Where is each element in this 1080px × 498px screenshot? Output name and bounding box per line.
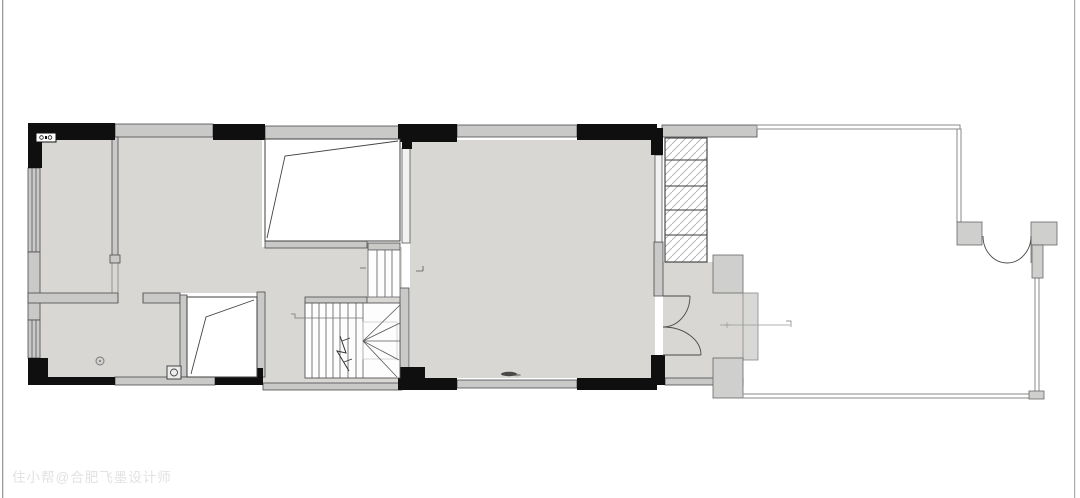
floorplan-canvas: 住小帮@合肥飞墨设计师 bbox=[0, 0, 1080, 498]
courtyard bbox=[743, 125, 1057, 399]
stair-right-wall bbox=[400, 288, 409, 378]
wall-top-mid bbox=[213, 124, 265, 140]
wall-bottom-living-right bbox=[577, 378, 657, 390]
bathroom-right-wall bbox=[180, 295, 187, 377]
cabinet-body bbox=[665, 138, 707, 262]
gate-arc-right bbox=[1007, 236, 1031, 263]
window-top-living bbox=[457, 125, 577, 137]
living-room-floor bbox=[410, 140, 655, 378]
void-c-right-wall bbox=[257, 292, 265, 377]
window-bottom-left bbox=[115, 377, 215, 385]
wall-bottom-living-left bbox=[400, 378, 457, 390]
void-upper bbox=[265, 139, 400, 241]
cabinet bbox=[665, 138, 707, 262]
watermark-text: 住小帮@合肥飞墨设计师 bbox=[12, 466, 172, 486]
entry-floor bbox=[663, 262, 715, 378]
wall-bottom-left bbox=[36, 377, 115, 385]
courtyard-wall-bottom bbox=[743, 394, 1036, 398]
entry-gate-floor bbox=[715, 293, 743, 360]
living-right-wall-mid bbox=[654, 242, 663, 296]
column-living-right-top bbox=[651, 128, 663, 155]
courtyard-wall-right-lower bbox=[1035, 278, 1039, 394]
courtyard-wall-right-upper bbox=[957, 129, 961, 222]
bedroom-divider-wall bbox=[112, 137, 118, 257]
column-living-right-bottom bbox=[651, 355, 665, 385]
bedroom-doorway-floor bbox=[112, 262, 118, 293]
void-lower bbox=[187, 297, 257, 377]
window-left-lower bbox=[28, 320, 40, 358]
bedroom-divider-joint bbox=[110, 255, 120, 263]
window-top-left bbox=[115, 124, 213, 137]
floor-drain-icon bbox=[96, 357, 104, 365]
left-wall-mid bbox=[28, 252, 40, 320]
portal-pier-top bbox=[713, 255, 743, 293]
portal-threshold bbox=[743, 293, 758, 360]
window-living-left bbox=[402, 148, 410, 243]
gate-jamb-right-bar bbox=[1032, 245, 1043, 278]
column-living-topleft bbox=[402, 142, 412, 149]
gate-jamb-left bbox=[957, 222, 982, 245]
bedroom-left-floor bbox=[40, 137, 113, 295]
left-frame-line bbox=[2, 0, 3, 498]
window-living-right bbox=[655, 155, 662, 242]
bedroom-middle-floor bbox=[118, 137, 262, 293]
shower-drain-icon bbox=[167, 366, 181, 379]
right-frame-line bbox=[1074, 0, 1075, 498]
wall-top-living-left bbox=[398, 124, 457, 142]
bathroom-floor bbox=[40, 303, 180, 377]
stair-upper-flight bbox=[368, 250, 400, 297]
portal-pier-bottom bbox=[713, 358, 743, 398]
column-top-left bbox=[28, 123, 42, 168]
stair-top-band bbox=[305, 297, 367, 303]
stair-upper-band bbox=[368, 243, 400, 250]
top-wall-cabinet bbox=[662, 125, 757, 137]
bathroom-top-wall-left bbox=[28, 293, 118, 303]
socket-icon bbox=[36, 133, 56, 142]
bathroom-door-threshold bbox=[118, 293, 143, 303]
gate-jamb-right bbox=[1031, 222, 1057, 245]
gate-arc-left bbox=[983, 236, 1007, 263]
courtyard-corner-block bbox=[1029, 391, 1044, 399]
wall-top-living-right bbox=[577, 124, 657, 140]
bathroom-top-wall-right bbox=[143, 293, 180, 303]
window-bottom-living bbox=[457, 380, 577, 388]
bottom-wall-under-stairs bbox=[263, 383, 402, 390]
window-left-upper bbox=[28, 168, 40, 252]
courtyard-gate-door bbox=[983, 236, 1031, 263]
courtyard-wall-top bbox=[757, 125, 960, 129]
floorplan-drawing bbox=[0, 0, 1080, 498]
void-top-wall bbox=[265, 126, 402, 139]
